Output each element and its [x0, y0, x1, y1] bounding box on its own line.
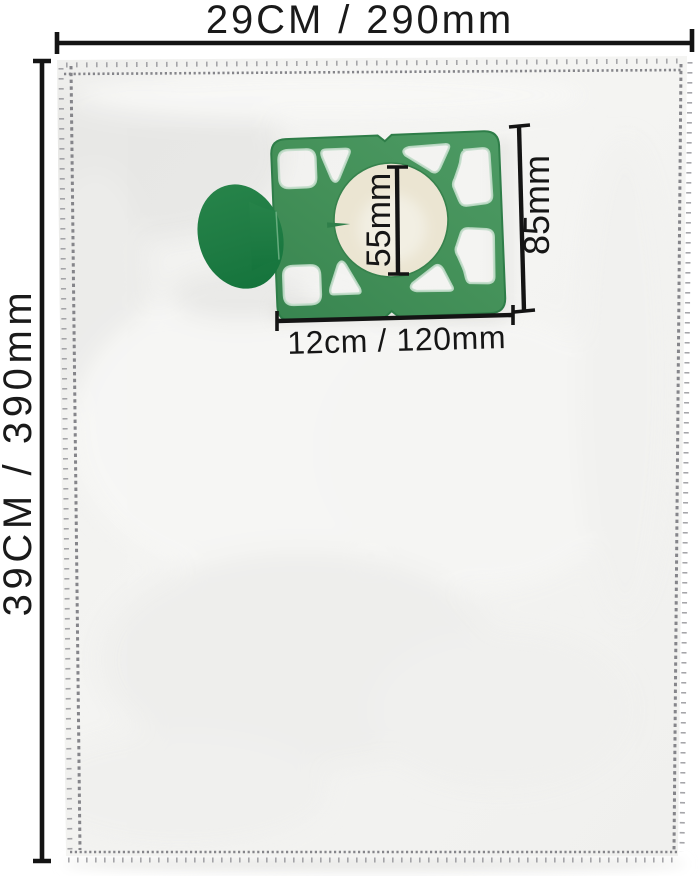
svg-text:55mm: 55mm: [360, 173, 398, 267]
svg-text:12cm / 120mm: 12cm / 120mm: [287, 319, 507, 361]
svg-text:39CM / 390mm: 39CM / 390mm: [0, 288, 40, 617]
svg-text:29CM / 290mm: 29CM / 290mm: [206, 0, 514, 42]
